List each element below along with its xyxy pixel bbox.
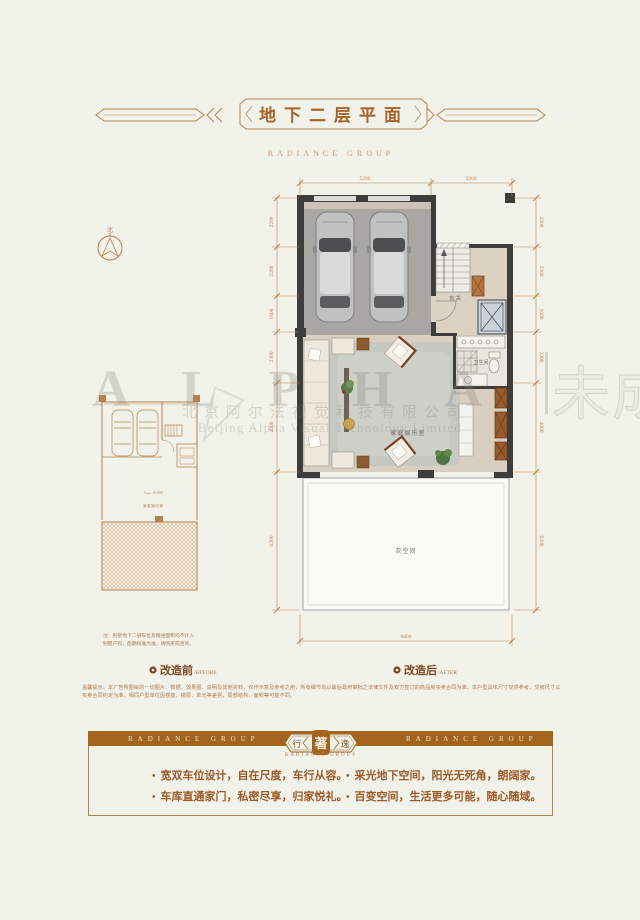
main-floorplan: 地下二层平面 RADIANCE GROUP 北 xyxy=(0,0,640,710)
watermark-status: 未成品 xyxy=(552,362,640,427)
footer: RADIANCE GROUP RADIANCE GROUP 著 行 逸 RADI… xyxy=(88,731,553,816)
dim-label: 4000 xyxy=(538,422,544,433)
legend-after-label: 改造后 xyxy=(404,663,437,677)
before-room-label: 家庭娱乐室 xyxy=(143,503,163,508)
dim-label: 2200 xyxy=(269,216,275,227)
elevator-icon xyxy=(478,300,506,334)
compass-icon: 北 xyxy=(98,226,122,260)
before-elevation-label: -8.000 xyxy=(152,490,163,495)
dim-label: 5200 xyxy=(360,176,371,182)
compass-north-label: 北 xyxy=(107,226,113,234)
legend-before-label: 改造前 xyxy=(160,663,193,677)
before-floorplan xyxy=(99,395,200,590)
room-label-gray: 灰空间 xyxy=(395,547,416,555)
stairs-icon xyxy=(436,248,470,292)
page-title: 地下二层平面 xyxy=(259,105,409,125)
car-icon xyxy=(313,212,357,322)
bullet-item: 车库直通家门，私密尽享，归家悦礼。 xyxy=(152,788,348,804)
footer-band-right-text: RADIANCE GROUP xyxy=(406,735,538,743)
brand-subtitle: RADIANCE GROUP xyxy=(268,149,394,158)
legend-before: 改造前 /BEFORE xyxy=(149,663,217,677)
dim-label: 1600 xyxy=(538,309,544,320)
dim-label: 6200 xyxy=(538,536,544,547)
dim-label: 2300 xyxy=(538,352,544,363)
dim-label: 1600 xyxy=(269,308,275,319)
dim-label: 2200 xyxy=(269,265,275,276)
room-label-entry: 玄关 xyxy=(449,294,462,302)
car-icon xyxy=(367,212,411,322)
legend-after: 改造后 /AFTER xyxy=(393,663,457,677)
footer-band-left-text: RADIANCE GROUP xyxy=(128,735,260,743)
page: 地下二层平面 RADIANCE GROUP 北 xyxy=(0,0,640,920)
dim-label: 6200 xyxy=(269,535,275,546)
dim-label: 8400 xyxy=(401,634,412,640)
bullet-item: 百变空间，生活更多可能，随心随域。 xyxy=(346,788,542,804)
legend-after-sub: /AFTER xyxy=(438,670,457,676)
legend-before-sub: /BEFORE xyxy=(194,670,217,676)
note-text-line1: 注：别墅地下二层车位及赠送面积均不计入 xyxy=(103,632,194,639)
dim-label: 2200 xyxy=(538,266,544,277)
watermark-company-en: Beijing Alpha Visual Technology Limited xyxy=(198,420,462,435)
dim-label: 3200 xyxy=(466,176,477,182)
disclaimer-line2: 买卖合同约定为准。相同户型单位因楼座、楼层、单元等差别，局部结构、面积等可能不同… xyxy=(82,692,295,699)
disclaimer-line1: 温馨提示：本广告所图绘的一切图片、数据、效果图、说明及其他资料，仅作示意及参考之… xyxy=(82,684,560,691)
bullet-item: 采光地下空间，阳光无死角，朗阔家。 xyxy=(346,767,542,783)
note-text-line2: 别墅产权，后期核准为准，请购买前咨询。 xyxy=(103,640,194,647)
dim-label: 2200 xyxy=(538,217,544,228)
bullet-item: 宽双车位设计，自在尺度，车行从容。 xyxy=(152,767,348,783)
door-panel-icon xyxy=(472,276,484,296)
